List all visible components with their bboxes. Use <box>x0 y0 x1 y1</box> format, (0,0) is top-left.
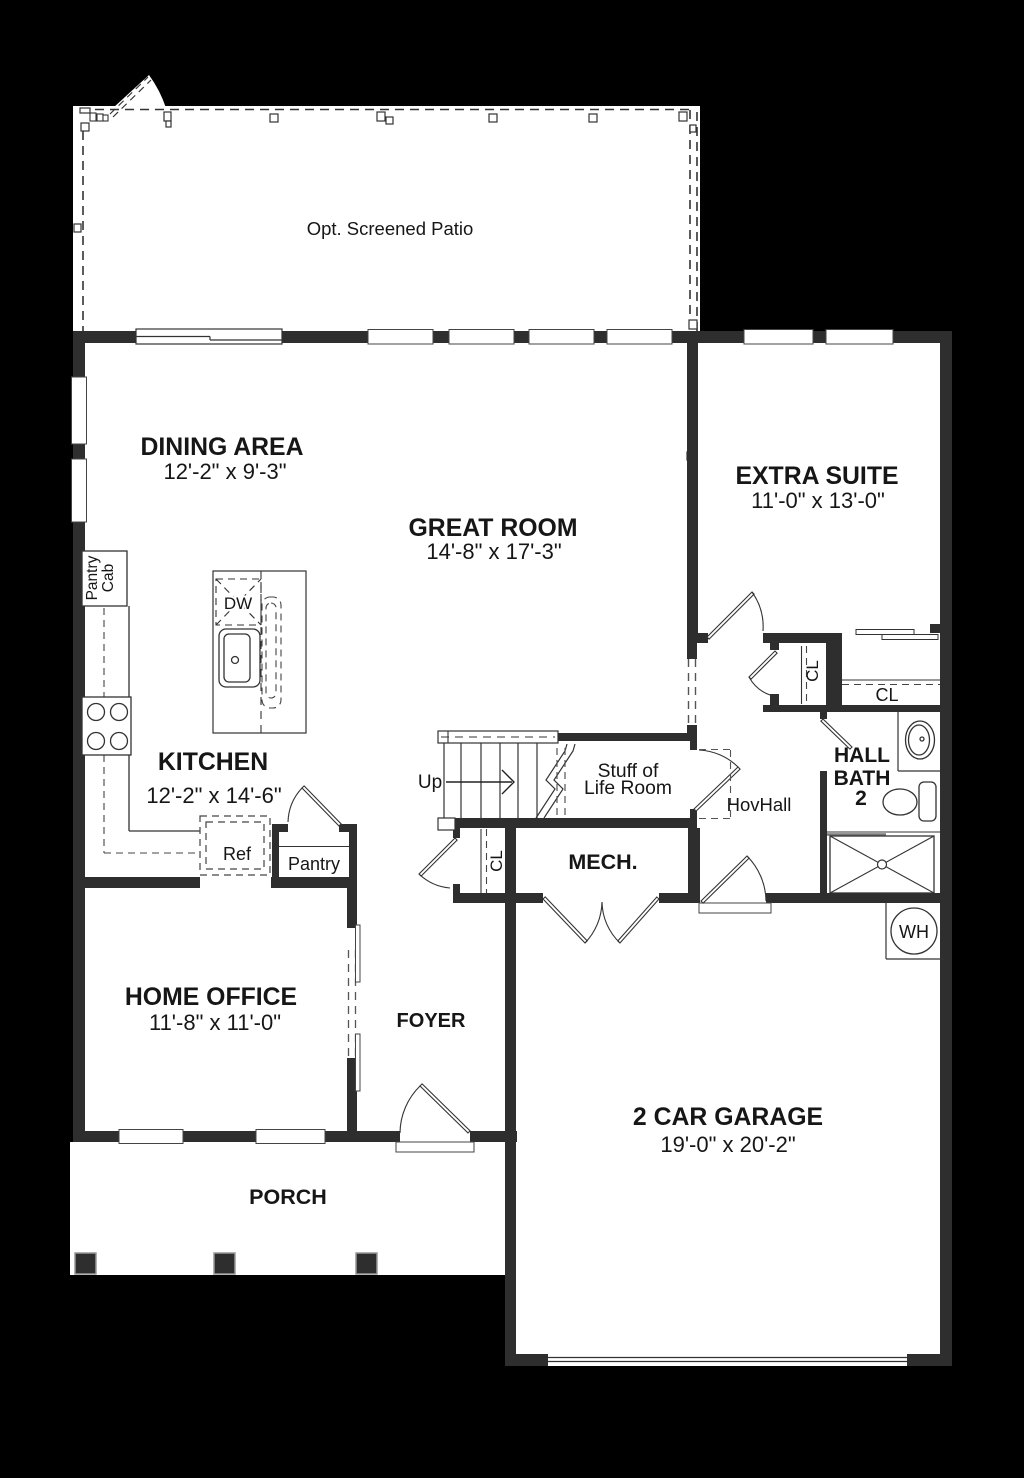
svg-text:Life Room: Life Room <box>584 778 672 799</box>
svg-text:12'-2" x 14'-6": 12'-2" x 14'-6" <box>146 783 281 808</box>
svg-text:2 CAR GARAGE: 2 CAR GARAGE <box>633 1104 823 1131</box>
svg-text:CL: CL <box>803 660 822 682</box>
svg-text:HOME OFFICE: HOME OFFICE <box>125 984 297 1011</box>
svg-text:DINING AREA: DINING AREA <box>140 434 303 461</box>
svg-text:CL: CL <box>487 850 506 872</box>
svg-text:2: 2 <box>855 787 867 810</box>
svg-text:WH: WH <box>899 922 929 942</box>
svg-text:11'-0" x 13'-0": 11'-0" x 13'-0" <box>751 488 885 513</box>
svg-text:KITCHEN: KITCHEN <box>158 749 268 776</box>
svg-text:HALL: HALL <box>834 744 890 767</box>
svg-text:Pantry: Pantry <box>84 555 101 600</box>
svg-text:HovHall: HovHall <box>727 794 792 815</box>
svg-text:FOYER: FOYER <box>397 1010 466 1032</box>
svg-text:Up: Up <box>418 772 442 793</box>
svg-text:11'-8" x 11'-0": 11'-8" x 11'-0" <box>149 1010 281 1035</box>
svg-text:GREAT ROOM: GREAT ROOM <box>409 515 578 542</box>
svg-text:14'-8" x 17'-3": 14'-8" x 17'-3" <box>426 539 561 564</box>
svg-text:EXTRA SUITE: EXTRA SUITE <box>735 463 898 490</box>
svg-text:Pantry: Pantry <box>288 854 340 874</box>
svg-text:CL: CL <box>875 685 898 705</box>
svg-text:Ref: Ref <box>223 844 252 864</box>
svg-text:Opt. Screened Patio: Opt. Screened Patio <box>307 218 474 239</box>
svg-text:DW: DW <box>224 594 252 613</box>
svg-text:19'-0" x 20'-2": 19'-0" x 20'-2" <box>660 1132 795 1157</box>
svg-text:12'-2" x 9'-3": 12'-2" x 9'-3" <box>163 459 286 484</box>
svg-text:MECH.: MECH. <box>568 850 637 874</box>
svg-text:PORCH: PORCH <box>249 1185 327 1209</box>
svg-text:Cab: Cab <box>100 564 117 592</box>
